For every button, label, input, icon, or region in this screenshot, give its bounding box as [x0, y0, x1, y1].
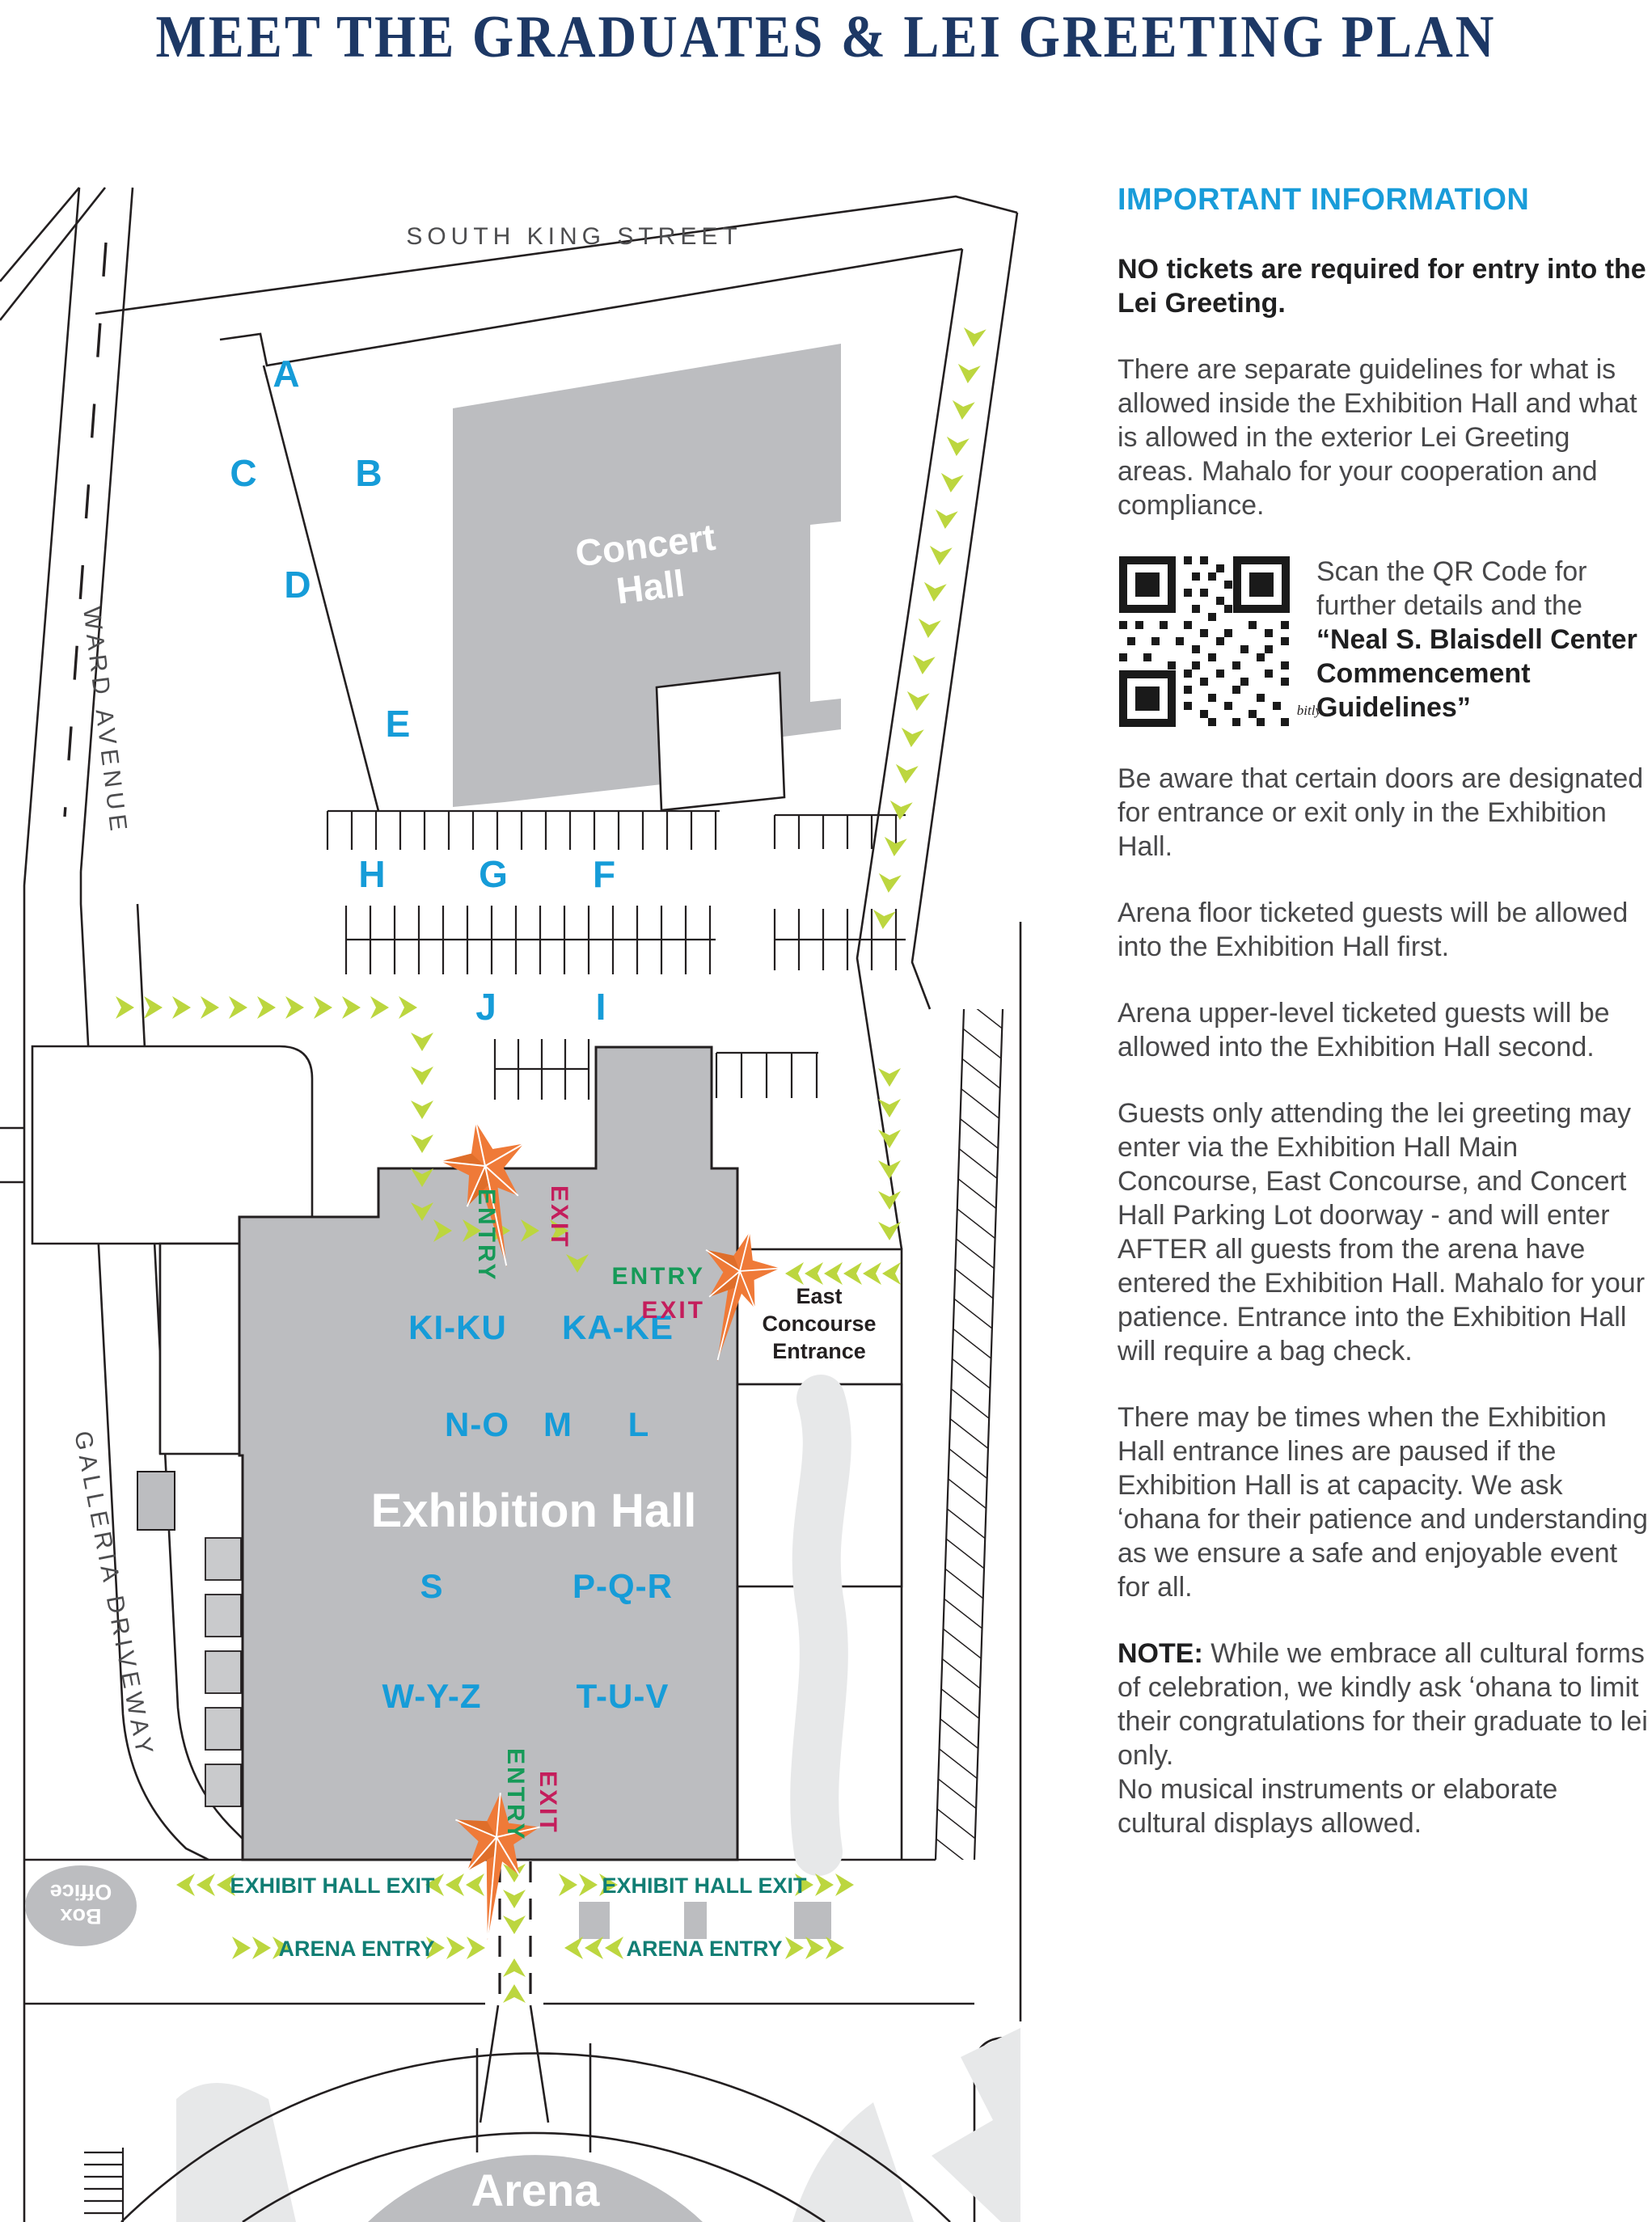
box-office-label: Box [60, 1904, 101, 1928]
box-office: Box Office [25, 1865, 137, 1946]
box-office-label: Office [50, 1880, 112, 1904]
svg-text:ARENA ENTRY: ARENA ENTRY [626, 1937, 782, 1961]
south-entry-label: ENTRY [502, 1748, 529, 1842]
svg-text:S: S [420, 1567, 443, 1605]
lot-e-parcel [657, 673, 784, 810]
svg-text:East: East [796, 1284, 842, 1308]
svg-text:E: E [386, 703, 411, 745]
note-paragraph: NOTE: While we embrace all cultural form… [1118, 1637, 1652, 1840]
lei-guests-paragraph: Guests only attending the lei greeting m… [1118, 1096, 1652, 1368]
svg-text:C: C [230, 452, 256, 494]
svg-text:J: J [475, 986, 496, 1028]
flow-row-labels: EXHIBIT HALL EXIT EXHIBIT HALL EXIT AREN… [230, 1873, 807, 1961]
south-exit-label: EXIT [534, 1771, 561, 1835]
svg-text:KI-KU: KI-KU [408, 1308, 507, 1346]
qr-caption: bitly [1297, 694, 1321, 728]
hall-west-block [137, 1472, 175, 1530]
note-label: NOTE: [1118, 1638, 1203, 1669]
qr-text-plain: Scan the QR Code for further details and… [1316, 556, 1587, 621]
guidelines-paragraph: There are separate guidelines for what i… [1118, 353, 1652, 522]
arena-upper-paragraph: Arena upper-level ticketed guests will b… [1118, 996, 1652, 1064]
svg-text:H: H [358, 853, 385, 895]
exhibition-hall-label: Exhibition Hall [371, 1485, 697, 1537]
svg-text:L: L [628, 1405, 650, 1443]
svg-text:Entrance: Entrance [772, 1339, 866, 1363]
svg-text:G: G [479, 853, 508, 895]
west-parcel [32, 1046, 312, 1244]
qr-instructions: Scan the QR Code for further details and… [1316, 555, 1652, 729]
lei-greeting-plan-flyer: MEET THE GRADUATES & LEI GREETING PLAN [0, 0, 1652, 2222]
no-tickets-note: NO tickets are required for entry into t… [1118, 252, 1652, 320]
svg-text:ARENA ENTRY: ARENA ENTRY [278, 1937, 434, 1961]
info-heading: IMPORTANT INFORMATION [1118, 183, 1652, 217]
main-exit-label: EXIT [546, 1185, 572, 1249]
site-map: Box Office [0, 0, 1043, 2222]
east-exit-label: EXIT [641, 1297, 705, 1324]
hall-stairs [205, 1538, 241, 1806]
info-panel: IMPORTANT INFORMATION NO tickets are req… [1118, 183, 1652, 1873]
hall-west-annex [160, 1244, 239, 1454]
svg-text:D: D [284, 564, 311, 606]
planter-square [579, 1902, 610, 1939]
svg-text:F: F [593, 853, 615, 895]
svg-text:T-U-V: T-U-V [577, 1677, 670, 1715]
svg-text:P-Q-R: P-Q-R [572, 1567, 673, 1605]
planter-square [684, 1902, 707, 1939]
walkway-blob-southeast [932, 2028, 1020, 2222]
qr-section: bitly Scan the QR Code for further detai… [1118, 555, 1652, 729]
doors-paragraph: Be aware that certain doors are designat… [1118, 762, 1652, 864]
note-text-b: No musical instruments or elaborate cult… [1118, 1774, 1557, 1839]
angled-parking-strip [936, 1009, 1003, 1860]
svg-text:B: B [355, 452, 382, 494]
qr-text-bold: “Neal S. Blaisdell Center Commencement G… [1316, 624, 1637, 723]
svg-text:EXHIBIT HALL EXIT: EXHIBIT HALL EXIT [602, 1873, 807, 1898]
svg-text:EXHIBIT HALL EXIT: EXHIBIT HALL EXIT [230, 1873, 435, 1898]
svg-text:Concourse: Concourse [762, 1312, 876, 1336]
planter-square [794, 1902, 831, 1939]
svg-text:Hall: Hall [614, 562, 687, 612]
qr-code: bitly [1118, 555, 1292, 729]
east-entry-label: ENTRY [611, 1263, 705, 1290]
arena-label: Arena [471, 2165, 601, 2216]
walkway-blob-east [814, 1399, 827, 1852]
main-entry-label: ENTRY [473, 1189, 500, 1282]
street-label-south-king: SOUTH KING STREET [406, 223, 741, 250]
svg-text:W-Y-Z: W-Y-Z [382, 1677, 481, 1715]
svg-text:I: I [596, 986, 606, 1028]
svg-text:A: A [273, 353, 299, 395]
arena-floor-paragraph: Arena floor ticketed guests will be allo… [1118, 896, 1652, 964]
svg-text:N-O: N-O [445, 1405, 509, 1443]
capacity-paragraph: There may be times when the Exhibition H… [1118, 1400, 1652, 1604]
svg-text:M: M [543, 1405, 572, 1443]
